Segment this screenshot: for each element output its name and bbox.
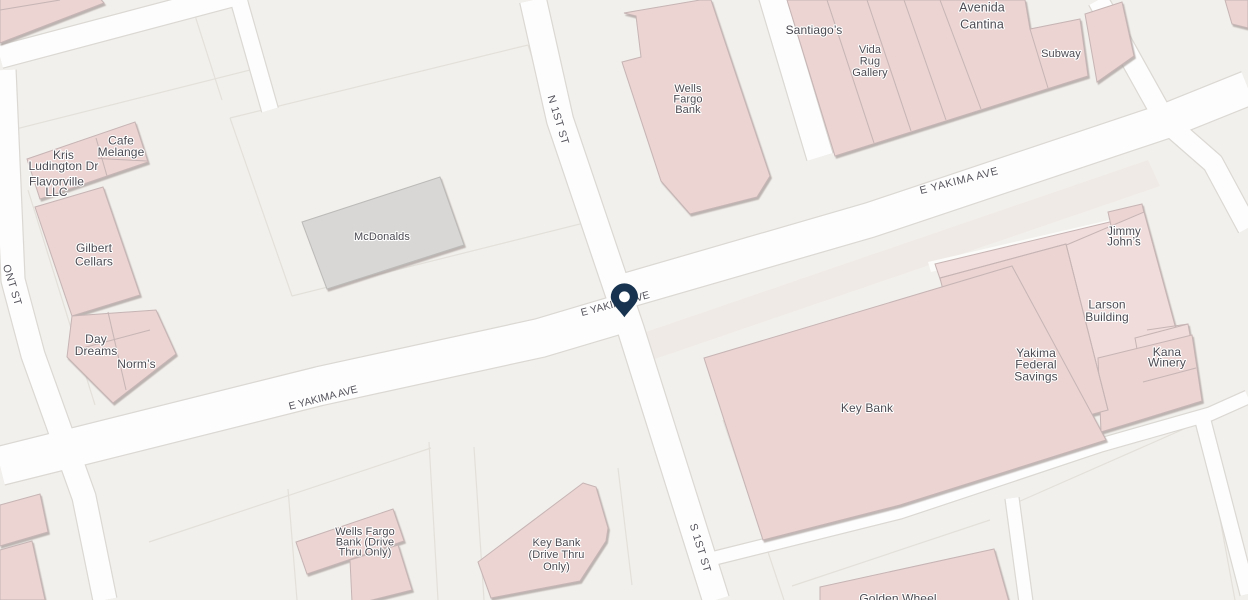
svg-text:Bank: Bank — [675, 104, 701, 116]
svg-text:Dreams: Dreams — [75, 344, 118, 358]
svg-text:Cellars: Cellars — [75, 255, 113, 269]
svg-text:Key Bank: Key Bank — [533, 537, 581, 549]
svg-text:Subway: Subway — [1041, 48, 1081, 60]
svg-text:Cantina: Cantina — [960, 18, 1004, 32]
svg-text:Winery: Winery — [1148, 356, 1186, 370]
svg-text:McDonalds: McDonalds — [354, 231, 410, 243]
svg-text:Thru Only): Thru Only) — [339, 547, 392, 559]
svg-text:Rug: Rug — [860, 56, 880, 68]
svg-text:Santiago’s: Santiago’s — [786, 23, 843, 37]
svg-text:Vida: Vida — [859, 44, 882, 56]
svg-text:Golden Wheel: Golden Wheel — [859, 592, 936, 600]
svg-text:Key Bank: Key Bank — [841, 401, 894, 415]
svg-text:Gallery: Gallery — [852, 67, 888, 79]
svg-text:Gilbert: Gilbert — [76, 241, 113, 255]
svg-text:John’s: John’s — [1107, 237, 1141, 249]
svg-text:(Drive Thru: (Drive Thru — [529, 549, 585, 561]
svg-text:Savings: Savings — [1014, 370, 1057, 384]
svg-text:Building: Building — [1085, 310, 1129, 324]
svg-text:Only): Only) — [543, 561, 570, 573]
svg-text:Avenida: Avenida — [959, 1, 1005, 15]
svg-text:Melange: Melange — [98, 145, 145, 159]
svg-text:Norm’s: Norm’s — [117, 357, 155, 371]
svg-text:Ludington Dr: Ludington Dr — [29, 159, 99, 173]
svg-text:LLC: LLC — [45, 185, 68, 199]
